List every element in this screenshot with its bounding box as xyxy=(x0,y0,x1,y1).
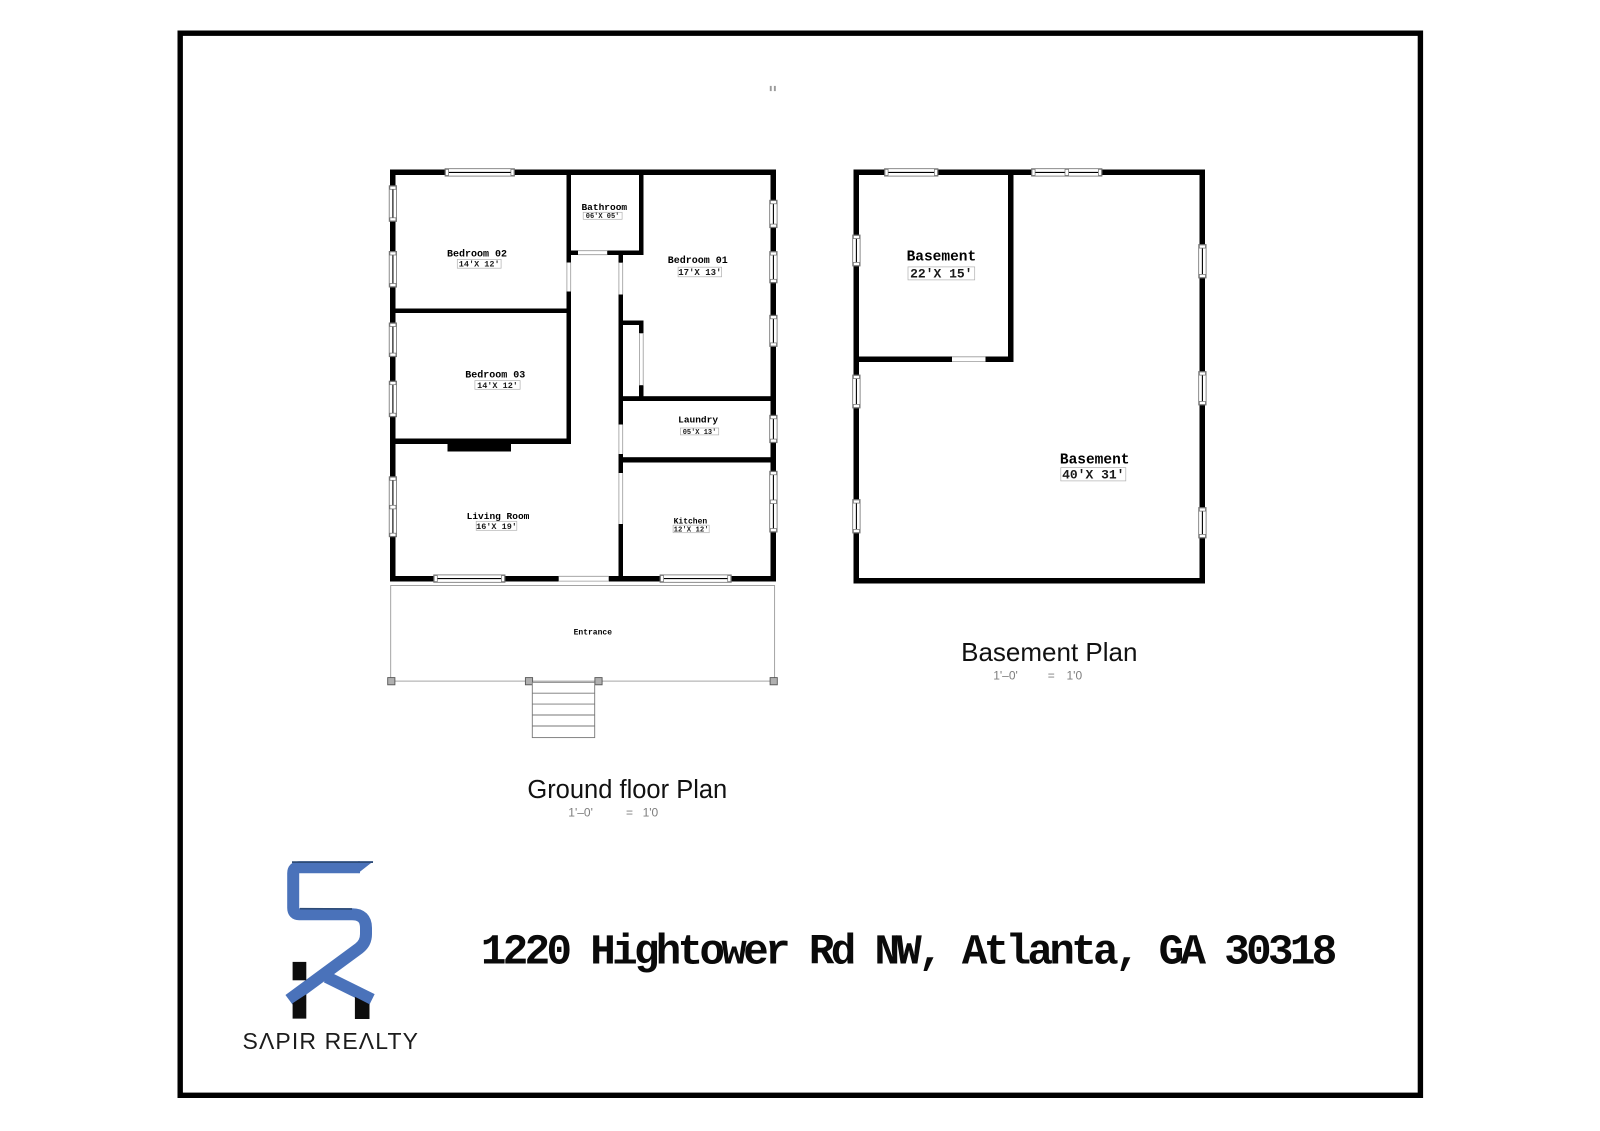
svg-text:Living Room: Living Room xyxy=(467,511,530,522)
svg-text:1220 Hightower Rd NW, Atlanta,: 1220 Hightower Rd NW, Atlanta, GA 30318 xyxy=(481,928,1336,976)
svg-text:14'X 12': 14'X 12' xyxy=(459,260,500,270)
svg-text:1'0: 1'0 xyxy=(643,805,659,819)
svg-text:12'X 12': 12'X 12' xyxy=(674,527,709,535)
svg-text:22'X 15': 22'X 15' xyxy=(910,267,972,282)
svg-text:Basement: Basement xyxy=(907,250,977,266)
svg-text:05'X 13': 05'X 13' xyxy=(683,429,717,437)
svg-text:Basement Plan: Basement Plan xyxy=(961,637,1137,667)
svg-text:Bedroom 02: Bedroom 02 xyxy=(447,248,507,260)
svg-text:Bedroom 01: Bedroom 01 xyxy=(668,255,728,267)
svg-text:14'X 12': 14'X 12' xyxy=(477,381,518,391)
svg-text:Bedroom 03: Bedroom 03 xyxy=(465,369,525,381)
svg-text:16'X 19': 16'X 19' xyxy=(476,522,517,532)
svg-text:=: = xyxy=(1048,668,1055,682)
svg-text:06'X 05': 06'X 05' xyxy=(586,213,620,221)
svg-text:17'X 13': 17'X 13' xyxy=(678,268,721,278)
svg-text:1'–0': 1'–0' xyxy=(568,805,593,819)
svg-text:40'X 31': 40'X 31' xyxy=(1062,468,1124,483)
svg-text:Bathroom: Bathroom xyxy=(581,202,627,213)
svg-text:=: = xyxy=(626,805,633,819)
svg-text:Ground floor Plan: Ground floor Plan xyxy=(527,776,727,804)
svg-text:SΛPIR REΛLTY: SΛPIR REΛLTY xyxy=(243,1028,419,1054)
svg-text:1'0: 1'0 xyxy=(1067,668,1083,682)
svg-text:Laundry: Laundry xyxy=(678,415,718,426)
svg-text:Basement: Basement xyxy=(1060,452,1130,468)
svg-text:1'–0': 1'–0' xyxy=(993,668,1018,682)
svg-text:Entrance: Entrance xyxy=(574,628,613,637)
